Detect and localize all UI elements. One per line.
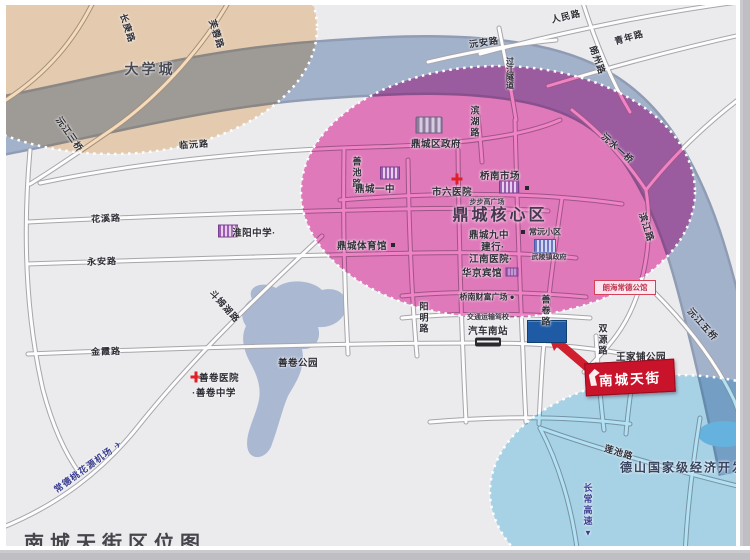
road-linyuan: 临沅路 [179,136,210,151]
school-building-icon-dingcheng1 [380,167,400,180]
poi-dingcheng-gymnasium: 鼎城体育馆 [337,238,387,252]
road-shanjuan: 善卷路 [540,295,553,328]
poi-qiaonan-fortune-plaza: 桥南财富广场 ● [459,292,514,303]
expressway-arrow: ▼ [584,529,592,538]
road-yongan: 永安路 [87,254,117,268]
frame-top [0,0,750,5]
government-building-icon [416,117,443,134]
town-government-building-icon [534,239,556,253]
poi-changyuan-community: 常沅小区 [529,227,561,238]
langhai-mansion-label: 朗海常德公馆 [594,280,656,295]
map-page: 长庚路芙蓉路人民路青年路朗州路沅安路过江隧道沅水一桥沅江三桥临沅路花溪路永安路金… [0,0,750,560]
poi-south-bus-station: 汽车南站 [468,323,508,337]
location-map: 长庚路芙蓉路人民路青年路朗州路沅安路过江隧道沅水一桥沅江三桥临沅路花溪路永安路金… [0,0,750,560]
road-binhu: 滨湖路 [469,106,482,139]
poi-transport-driving-school: 交通运输驾校 [467,312,509,322]
poi-qiaonan-market: 桥南市场 [480,168,520,182]
zone-dingcheng-core: 鼎城核心区 [452,201,547,225]
poi-huaiyang-school: 淮阳中学· [232,225,276,239]
poi-dot-changyuan [521,230,525,234]
project-logo-banner: 南城天街 [584,359,676,397]
poi-dot-market [525,186,529,190]
frame-bottom [0,546,750,560]
road-shuangyuan: 双源路 [597,324,610,357]
market-building-icon [499,181,519,194]
expressway-changchang: 长常高速 [582,483,595,527]
zone-university-town: 大学城 [125,59,176,79]
project-logo-text: 南城天街 [599,366,662,389]
poi-dingcheng-government: 鼎城区政府 [411,136,461,150]
poi-wuling-town-government: 武陵镇政府 [532,252,567,262]
poi-dot-gym [391,243,395,247]
poi-shanjuan-park: 善卷公园 [278,355,318,369]
tunnel-guojiang: 过江隧道 [505,57,516,89]
poi-huajing-hotel: 华京宾馆 [462,265,502,279]
poi-shanjuan-hospital: 善卷医院 [199,370,239,384]
frame-right [736,0,750,560]
poi-dingcheng-no1-school: 鼎城一中 [355,181,395,195]
bus-station-icon [475,338,501,347]
hospital-cross-icon-six [452,174,463,185]
road-jinxia: 金霞路 [91,344,121,358]
poi-jiangnan-hospital: 江南医院· [469,251,513,265]
frame-left [0,0,6,560]
road-yangming: 阳明路 [418,302,431,335]
poi-shanjuan-school: ·善卷中学 [192,385,236,399]
road-huaxi: 花溪路 [91,211,122,226]
zone-deshan: 德山国家级经济开发区 [620,459,750,476]
poi-city-sixth-hospital: 市六医院 [432,184,472,198]
hotel-building-icon [506,268,519,277]
